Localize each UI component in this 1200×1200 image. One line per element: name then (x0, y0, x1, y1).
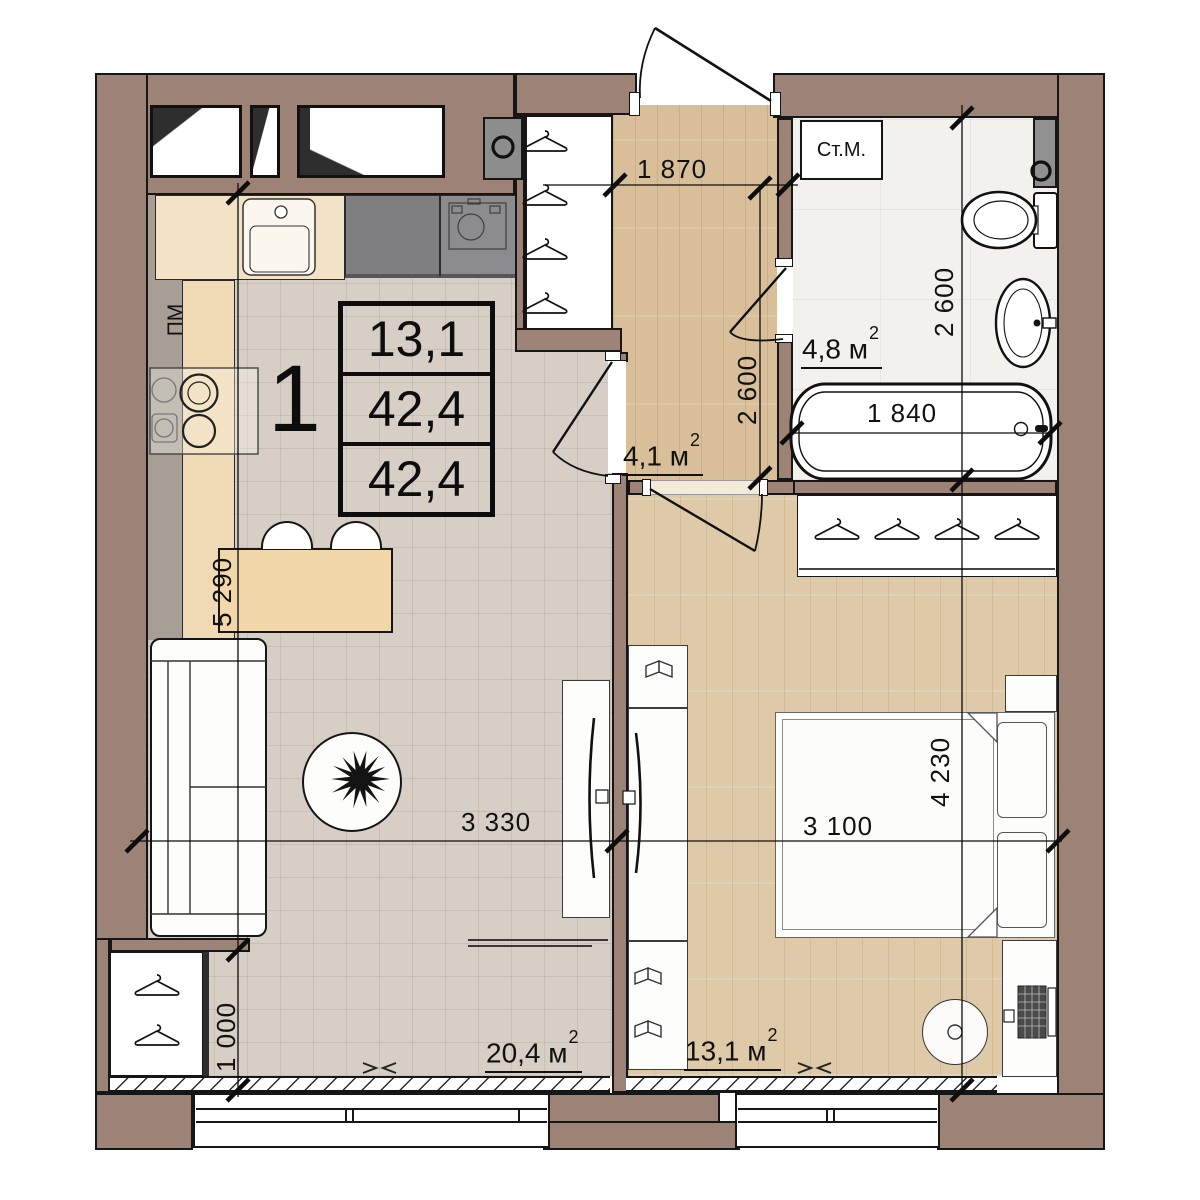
book-icon (646, 661, 672, 677)
dim-hallway-depth: 2 600 (734, 355, 760, 425)
vent-circle-icon (1032, 162, 1050, 180)
dishwasher-label: ПМ (164, 304, 188, 337)
tv-living-icon (590, 718, 609, 878)
hanger-icon (875, 519, 919, 539)
book-icon (635, 1021, 661, 1037)
area-bathroom-value: 4,8 м (802, 333, 868, 364)
hanger-icon (815, 519, 859, 539)
stove-icon (150, 368, 258, 454)
hanger-icon (995, 519, 1039, 539)
area-bedroom-sup: 2 (768, 1025, 778, 1045)
vent-circle-icon (493, 137, 513, 157)
room-count: 1 (268, 352, 321, 447)
bathroom-door (730, 268, 786, 340)
dim-kitchen-living-length: 5 290 (209, 557, 235, 627)
dim-living-width: 3 330 (461, 809, 531, 835)
plant-icon (331, 751, 390, 809)
info-living-area: 13,1 (343, 306, 490, 376)
bedroom-door (650, 489, 762, 551)
area-bathroom-sup: 2 (869, 323, 879, 343)
area-hallway-sup: 2 (690, 430, 700, 450)
floor-plan: Ст.М. (0, 0, 1200, 1200)
laptop-icon (1004, 986, 1056, 1038)
blanket-fold (968, 908, 997, 937)
apartment-info-table: 13,1 42,4 42,4 (338, 301, 495, 517)
area-living-sup: 2 (569, 1027, 579, 1047)
radiator-lines (468, 940, 608, 946)
hanger-icon (935, 519, 979, 539)
hanger-icon (523, 293, 567, 313)
coffee-machine-icon (449, 199, 506, 249)
blanket-fold (968, 713, 997, 742)
area-label-bathroom: 4,8 м2 (801, 333, 882, 369)
hanger-icon (135, 1025, 179, 1045)
area-label-bedroom: 13,1 м2 (684, 1035, 781, 1071)
info-area: 42,4 (343, 376, 490, 446)
dim-hallway-width: 1 870 (637, 156, 707, 182)
washbasin-icon (996, 279, 1056, 367)
hanger-icon (523, 185, 567, 205)
dim-bathroom-depth: 2 600 (931, 267, 957, 337)
area-label-living: 20,4 м2 (485, 1037, 582, 1073)
hanger-icon (523, 239, 567, 259)
toilet-icon (962, 192, 1057, 248)
kitchen-sink-icon (243, 199, 315, 275)
area-hallway-value: 4,1 м (623, 440, 689, 471)
dim-bedroom-width: 3 100 (803, 813, 873, 839)
plan-overlay (0, 0, 1200, 1200)
hanger-icon (523, 131, 567, 151)
entrance-door (640, 28, 771, 101)
dim-closet-depth: 1 000 (213, 1002, 239, 1072)
tv-bedroom-icon (623, 733, 641, 873)
dim-bathtub-length: 1 840 (867, 400, 937, 426)
area-bedroom-value: 13,1 м (685, 1035, 767, 1066)
sofa-lines (151, 661, 266, 914)
hanger-icon (135, 975, 179, 995)
rug-center (948, 1025, 962, 1039)
area-living-value: 20,4 м (486, 1037, 568, 1068)
dim-bedroom-length: 4 230 (927, 737, 953, 807)
book-icon (635, 968, 661, 984)
info-total-area: 42,4 (343, 446, 490, 512)
area-label-hallway: 4,1 м2 (622, 440, 703, 476)
living-room-door (553, 362, 612, 476)
